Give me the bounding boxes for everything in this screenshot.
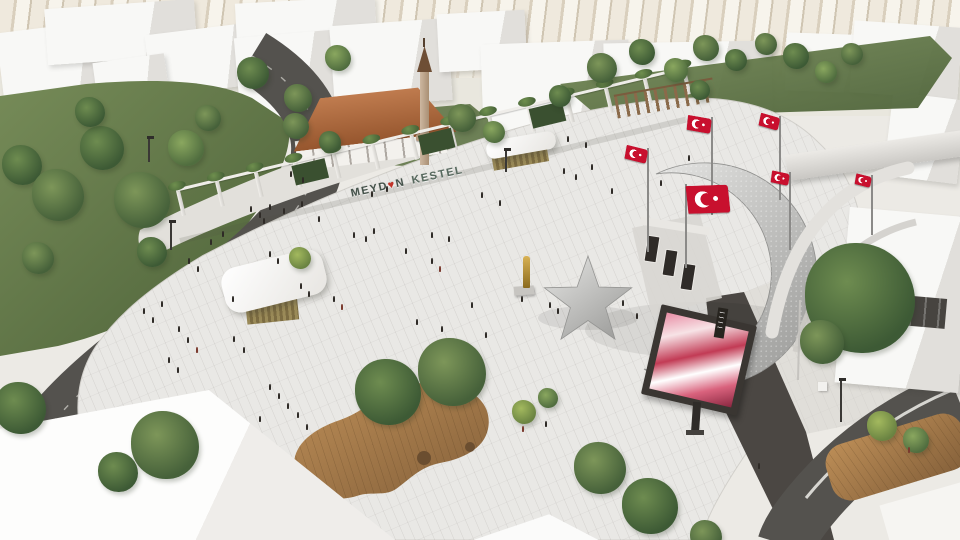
led-screen-frame bbox=[641, 304, 757, 416]
person bbox=[636, 313, 638, 319]
pergola-planter bbox=[323, 142, 343, 155]
plaza-paving-pattern bbox=[78, 98, 862, 540]
pergola-planter bbox=[245, 161, 265, 174]
minaret-balcony bbox=[416, 134, 433, 141]
pergola-post bbox=[410, 135, 420, 160]
person bbox=[585, 142, 587, 148]
person bbox=[545, 421, 547, 427]
wood-planter-planks bbox=[821, 409, 960, 506]
tree bbox=[512, 400, 536, 424]
deck-tree-hole bbox=[465, 442, 475, 452]
memorial-platform bbox=[632, 214, 722, 316]
person bbox=[178, 326, 180, 332]
kiosk-body bbox=[245, 293, 299, 324]
tree bbox=[483, 121, 505, 143]
flag-pole bbox=[711, 117, 713, 215]
pergola-post bbox=[293, 163, 303, 188]
person bbox=[341, 304, 343, 310]
tree bbox=[805, 243, 915, 353]
pergola-post bbox=[176, 191, 186, 216]
tree bbox=[98, 452, 138, 492]
person bbox=[499, 200, 501, 206]
info-totem-text bbox=[717, 312, 725, 331]
person bbox=[300, 283, 302, 289]
turkish-flag bbox=[624, 145, 648, 164]
person bbox=[371, 191, 373, 197]
person bbox=[161, 301, 163, 307]
person bbox=[522, 426, 524, 432]
led-screen bbox=[649, 313, 748, 408]
memorial-panel bbox=[680, 263, 696, 291]
wood-planter bbox=[821, 409, 960, 506]
flag-pole bbox=[789, 172, 791, 250]
tree bbox=[903, 427, 929, 453]
person bbox=[168, 357, 170, 363]
wood-deck bbox=[294, 382, 489, 498]
person bbox=[269, 251, 271, 257]
person bbox=[297, 412, 299, 418]
tree bbox=[114, 172, 170, 228]
tree bbox=[418, 338, 486, 406]
flag-pole bbox=[647, 148, 649, 252]
tree-trunk bbox=[387, 392, 390, 406]
person bbox=[549, 302, 551, 308]
wood-deck-planks bbox=[294, 382, 489, 498]
emblem-pylon bbox=[790, 303, 809, 346]
golden-statue bbox=[523, 256, 530, 288]
arch-support bbox=[828, 260, 830, 360]
pergola-post bbox=[254, 172, 264, 197]
arch-sculpture-inner bbox=[796, 222, 916, 352]
pergola-post bbox=[448, 125, 458, 150]
tree bbox=[22, 242, 54, 274]
bench-cube bbox=[818, 382, 827, 391]
tree bbox=[168, 130, 204, 166]
sign-word: N bbox=[395, 176, 407, 190]
town-square-render: MEYD♥NKESTEL bbox=[0, 0, 960, 540]
lamp-head bbox=[839, 378, 846, 381]
pergola-post bbox=[487, 116, 497, 141]
crescent-sculpture bbox=[644, 163, 817, 387]
led-screen-pole bbox=[691, 402, 701, 434]
person bbox=[441, 326, 443, 332]
person bbox=[152, 317, 154, 323]
foreground-roof bbox=[466, 506, 610, 540]
person bbox=[210, 239, 212, 245]
person bbox=[688, 155, 690, 161]
person bbox=[188, 258, 190, 264]
road-left-centerline bbox=[2, 56, 318, 516]
square-name-sign: MEYD♥NKESTEL bbox=[350, 153, 520, 208]
person bbox=[471, 302, 473, 308]
person bbox=[306, 424, 308, 430]
pergola-planter bbox=[284, 151, 304, 164]
lamp-head bbox=[504, 148, 511, 151]
kiosk-canopy bbox=[485, 130, 557, 160]
person bbox=[622, 300, 624, 306]
person bbox=[290, 171, 292, 177]
person bbox=[301, 201, 303, 207]
person bbox=[318, 216, 320, 222]
turkish-flag bbox=[687, 115, 712, 134]
tree bbox=[80, 126, 124, 170]
tree bbox=[131, 411, 199, 479]
tree bbox=[690, 520, 722, 540]
lamp-post bbox=[148, 138, 150, 162]
person bbox=[575, 174, 577, 180]
person bbox=[386, 186, 388, 192]
person bbox=[177, 367, 179, 373]
tree-trunk bbox=[451, 372, 454, 388]
person bbox=[557, 308, 559, 314]
person bbox=[591, 164, 593, 170]
sign-word: KESTEL bbox=[411, 164, 465, 187]
lamp-post bbox=[170, 222, 172, 250]
tree bbox=[800, 320, 844, 364]
flag-pole bbox=[871, 175, 873, 235]
stepped-terrace bbox=[138, 118, 442, 258]
led-screen-base bbox=[686, 430, 704, 435]
tree bbox=[622, 478, 678, 534]
person bbox=[431, 232, 433, 238]
municipal-building bbox=[835, 207, 960, 393]
person bbox=[563, 168, 565, 174]
pergola-post bbox=[332, 153, 342, 178]
pergola-planter bbox=[361, 133, 381, 146]
person bbox=[521, 296, 523, 302]
heart-icon: ♥ bbox=[387, 178, 397, 191]
person bbox=[243, 347, 245, 353]
road-left bbox=[2, 56, 318, 516]
person bbox=[611, 188, 613, 194]
road-bottom-right bbox=[786, 398, 958, 540]
foreground-roof bbox=[0, 390, 420, 540]
hillside-fade bbox=[0, 64, 960, 116]
person bbox=[232, 296, 234, 302]
pergola-planter bbox=[400, 123, 420, 136]
person bbox=[250, 206, 252, 212]
person bbox=[333, 296, 335, 302]
person bbox=[405, 248, 407, 254]
arch-support bbox=[798, 300, 800, 380]
kiosk-body bbox=[491, 143, 549, 170]
star-shadow bbox=[538, 306, 638, 330]
sign-word: MEYD bbox=[350, 180, 389, 200]
person bbox=[353, 232, 355, 238]
monument-shadow bbox=[585, 302, 815, 358]
turkish-flag bbox=[686, 185, 731, 214]
right-plaza-pattern bbox=[744, 216, 960, 434]
turkish-flag bbox=[854, 173, 871, 188]
person bbox=[143, 308, 145, 314]
pergola-planter bbox=[167, 179, 187, 192]
turkish-flag bbox=[771, 170, 790, 186]
lamp-head bbox=[147, 136, 154, 139]
person bbox=[308, 291, 310, 297]
star-sculpture bbox=[544, 256, 631, 339]
person bbox=[187, 337, 189, 343]
person bbox=[567, 136, 569, 142]
foreground-roof bbox=[879, 481, 960, 540]
lamp-head bbox=[169, 220, 176, 223]
tree bbox=[289, 247, 311, 269]
person bbox=[439, 266, 441, 272]
person bbox=[278, 393, 280, 399]
tree bbox=[2, 145, 42, 185]
plaza-paving bbox=[78, 98, 862, 540]
flag-pole bbox=[685, 184, 687, 268]
memorial-wall bbox=[640, 217, 710, 236]
pergola-shadow bbox=[179, 117, 686, 244]
person bbox=[302, 177, 304, 183]
person bbox=[485, 332, 487, 338]
person bbox=[416, 319, 418, 325]
pergola-planter bbox=[206, 170, 226, 183]
lamp-post bbox=[840, 380, 842, 422]
person bbox=[373, 228, 375, 234]
pergola-post bbox=[215, 181, 225, 206]
tree bbox=[0, 382, 46, 434]
person bbox=[365, 236, 367, 242]
person bbox=[287, 403, 289, 409]
person bbox=[283, 208, 285, 214]
crescent-perforation bbox=[644, 163, 817, 387]
info-totem bbox=[714, 307, 729, 338]
tree bbox=[319, 131, 341, 153]
tree bbox=[538, 388, 558, 408]
tree bbox=[32, 169, 84, 221]
grass-area-left bbox=[0, 81, 289, 356]
right-plaza bbox=[744, 216, 960, 434]
entrance-canopy bbox=[785, 129, 960, 181]
person bbox=[431, 258, 433, 264]
pergola-post bbox=[371, 144, 381, 169]
person bbox=[197, 266, 199, 272]
kiosk-canopy bbox=[218, 246, 330, 316]
green-wall-panel bbox=[418, 128, 456, 155]
arch-sculpture bbox=[772, 168, 908, 332]
person bbox=[908, 447, 910, 453]
tree bbox=[355, 359, 421, 425]
green-wall-panel bbox=[291, 158, 329, 185]
tree bbox=[137, 237, 167, 267]
person bbox=[481, 192, 483, 198]
deck-tree-hole bbox=[417, 451, 431, 465]
memorial-panel bbox=[644, 235, 660, 263]
road-bottom-right-curb bbox=[806, 390, 952, 498]
person bbox=[196, 347, 198, 353]
dark-walkway bbox=[706, 292, 834, 540]
person bbox=[222, 231, 224, 237]
person bbox=[758, 463, 760, 469]
memorial-panel bbox=[662, 249, 678, 277]
person bbox=[263, 218, 265, 224]
person bbox=[277, 258, 279, 264]
lamp-post bbox=[505, 150, 507, 172]
storefront-band bbox=[855, 291, 947, 329]
person bbox=[660, 180, 662, 186]
person bbox=[259, 212, 261, 218]
person bbox=[259, 416, 261, 422]
person bbox=[448, 236, 450, 242]
person bbox=[233, 336, 235, 342]
flag-pole bbox=[779, 116, 781, 200]
person bbox=[269, 204, 271, 210]
tree bbox=[574, 442, 626, 494]
gold-emblem bbox=[795, 308, 804, 322]
mosque-body bbox=[295, 123, 448, 171]
tree bbox=[867, 411, 897, 441]
statue-pedestal bbox=[514, 285, 535, 295]
person bbox=[269, 384, 271, 390]
tree bbox=[283, 113, 309, 139]
